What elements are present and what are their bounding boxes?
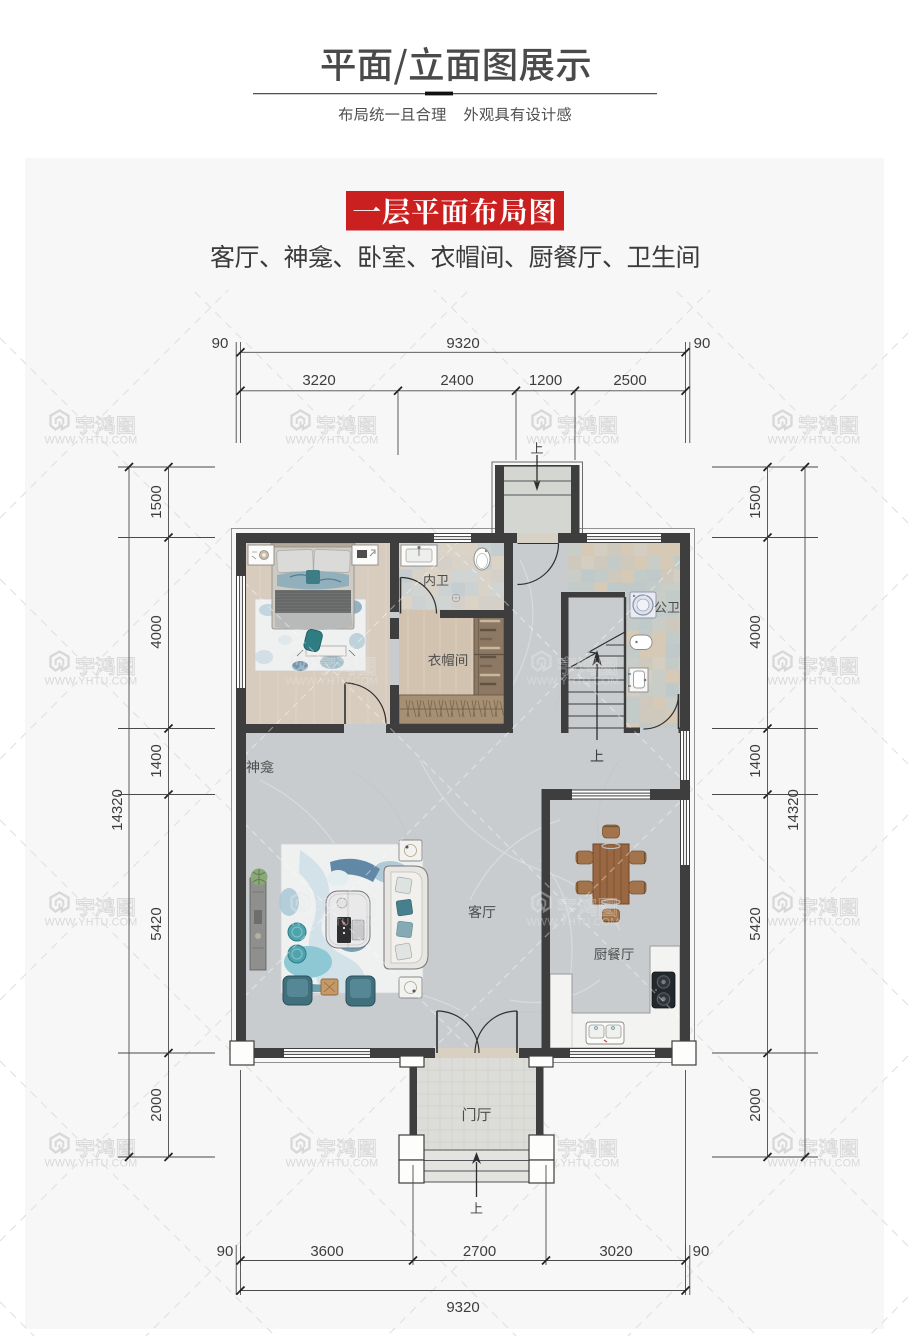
svg-text:WWW.YHTU.COM: WWW.YHTU.COM: [768, 435, 861, 447]
svg-text:WWW.YHTU.COM: WWW.YHTU.COM: [45, 435, 138, 447]
svg-text:3020: 3020: [599, 1243, 632, 1260]
svg-text:1400: 1400: [148, 744, 165, 777]
svg-text:14320: 14320: [109, 789, 126, 831]
svg-text:14320: 14320: [785, 789, 802, 831]
svg-text:WWW.YHTU.COM: WWW.YHTU.COM: [768, 676, 861, 688]
svg-text:4000: 4000: [747, 615, 764, 648]
svg-text:90: 90: [212, 335, 229, 352]
svg-text:WWW.YHTU.COM: WWW.YHTU.COM: [286, 676, 379, 688]
svg-text:WWW.YHTU.COM: WWW.YHTU.COM: [45, 917, 138, 929]
svg-text:2000: 2000: [148, 1088, 165, 1121]
svg-text:90: 90: [693, 1243, 710, 1260]
svg-text:WWW.YHTU.COM: WWW.YHTU.COM: [286, 917, 379, 929]
svg-text:WWW.YHTU.COM: WWW.YHTU.COM: [527, 676, 620, 688]
svg-text:2500: 2500: [613, 372, 646, 389]
svg-text:WWW.YHTU.COM: WWW.YHTU.COM: [527, 917, 620, 929]
svg-text:3600: 3600: [310, 1243, 343, 1260]
svg-text:WWW.YHTU.COM: WWW.YHTU.COM: [286, 435, 379, 447]
svg-text:WWW.YHTU.COM: WWW.YHTU.COM: [768, 917, 861, 929]
svg-text:1500: 1500: [747, 485, 764, 518]
svg-text:9320: 9320: [446, 335, 479, 352]
svg-text:1500: 1500: [148, 485, 165, 518]
svg-text:2000: 2000: [747, 1088, 764, 1121]
svg-text:90: 90: [694, 335, 711, 352]
svg-text:1200: 1200: [529, 372, 562, 389]
svg-text:4000: 4000: [148, 615, 165, 648]
svg-text:WWW.YHTU.COM: WWW.YHTU.COM: [768, 1158, 861, 1170]
svg-text:90: 90: [217, 1243, 234, 1260]
svg-text:5420: 5420: [148, 907, 165, 940]
svg-text:2400: 2400: [440, 372, 473, 389]
svg-text:5420: 5420: [747, 907, 764, 940]
svg-text:1400: 1400: [747, 744, 764, 777]
svg-text:3220: 3220: [302, 372, 335, 389]
svg-text:WWW.YHTU.COM: WWW.YHTU.COM: [527, 435, 620, 447]
svg-text:9320: 9320: [446, 1299, 479, 1316]
svg-text:WWW.YHTU.COM: WWW.YHTU.COM: [45, 676, 138, 688]
svg-text:2700: 2700: [463, 1243, 496, 1260]
svg-text:WWW.YHTU.COM: WWW.YHTU.COM: [286, 1158, 379, 1170]
svg-text:WWW.YHTU.COM: WWW.YHTU.COM: [45, 1158, 138, 1170]
